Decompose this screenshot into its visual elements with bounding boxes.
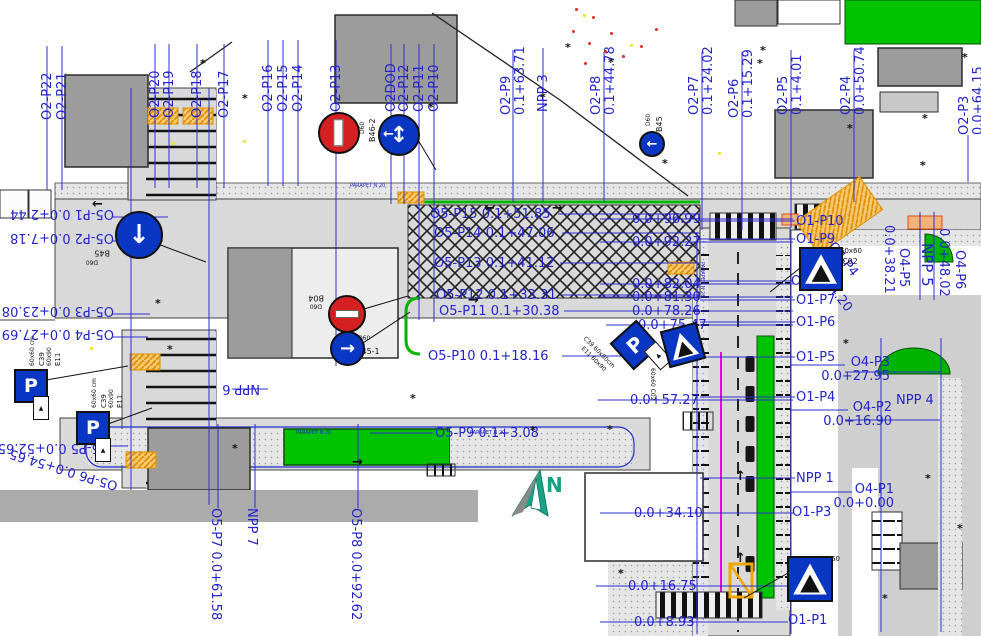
- plan-canvas: O2-P22O2-P21O2-P20O2-P19O2-P18O2-P17O2-P…: [0, 0, 981, 636]
- north-label: N: [546, 473, 563, 497]
- north-arrow: N: [0, 0, 981, 636]
